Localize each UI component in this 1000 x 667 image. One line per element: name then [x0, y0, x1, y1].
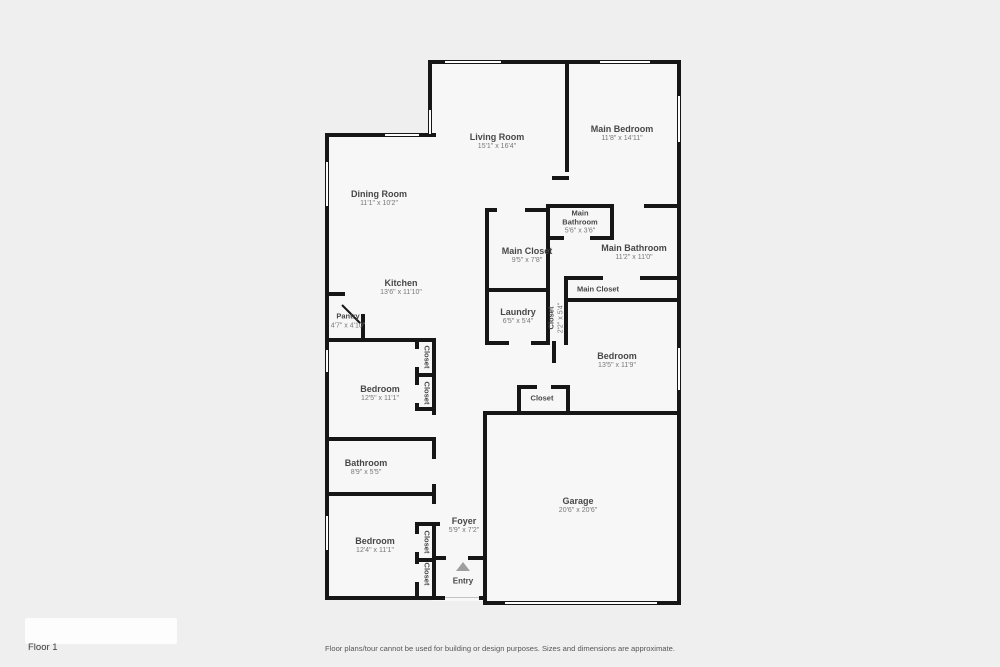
window — [505, 601, 657, 605]
floorplan-canvas: Living Room 15'1" x 16'4" Main Bedroom 1… — [0, 0, 1000, 667]
wall — [565, 60, 569, 172]
room-name: Main Bathroom — [601, 243, 667, 253]
room-name: Main Closet — [577, 286, 619, 295]
room-name: Main Bathroom — [554, 209, 606, 226]
room-label-closet-1: Closet — [422, 346, 431, 369]
wall — [644, 204, 681, 208]
room-dims: 15'1" x 16'4" — [470, 143, 525, 150]
wall — [525, 208, 546, 212]
wall — [485, 208, 497, 212]
wall — [325, 437, 436, 441]
wall — [590, 236, 614, 240]
room-dims: 11'1" x 10'2" — [351, 200, 407, 207]
room-name: Main Bedroom — [591, 124, 654, 134]
room-dims: 12'4" x 11'1" — [355, 547, 395, 554]
window — [325, 162, 329, 206]
room-label-pantry: Pantry 4'7" x 4'10" — [331, 313, 366, 330]
watermark — [25, 618, 177, 644]
wall — [415, 341, 419, 349]
room-label-closet-mid: Closet — [531, 395, 554, 404]
room-label-main-bathroom: Main Bathroom 11'2" x 11'0" — [601, 243, 667, 261]
room-label-main-bathroom-small: Main Bathroom 5'6" x 3'6" — [554, 209, 606, 234]
room-label-bedroom-left: Bedroom 12'5" x 11'1" — [360, 384, 400, 402]
window — [428, 110, 432, 134]
window — [600, 60, 650, 64]
wall — [531, 341, 546, 345]
room-name: Living Room — [470, 132, 525, 142]
room-name: Closet — [422, 346, 431, 369]
wall — [564, 298, 681, 302]
wall — [546, 204, 550, 240]
room-label-foyer: Foyer 5'9" x 7'2" — [449, 516, 480, 534]
wall — [432, 437, 436, 459]
room-label-bedroom-right: Bedroom 13'5" x 11'9" — [597, 351, 637, 369]
room-dims: 2'2" x 5'4" — [557, 303, 564, 334]
wall — [325, 492, 436, 496]
window — [325, 350, 329, 372]
wall — [415, 373, 436, 377]
wall — [610, 204, 614, 240]
room-dims: 5'9" x 7'2" — [449, 527, 480, 534]
entry-opening-line — [445, 597, 479, 598]
wall — [436, 556, 446, 560]
room-name: Bathroom — [345, 458, 388, 468]
room-label-main-bedroom: Main Bedroom 11'8" x 14'11" — [591, 124, 654, 142]
room-label-closet-strip: Closet 2'2" x 5'4" — [548, 303, 565, 334]
room-dims: 6'5" x 5'4" — [500, 318, 536, 325]
room-name: Closet — [531, 395, 554, 404]
room-label-kitchen: Kitchen 13'6" x 11'10" — [380, 278, 422, 296]
wall — [640, 276, 681, 280]
wall — [468, 556, 487, 560]
room-dims: 12'5" x 11'1" — [360, 395, 400, 402]
room-label-main-closet-2: Main Closet — [577, 286, 619, 295]
wall — [325, 292, 345, 296]
window — [385, 133, 419, 137]
room-name: Main Closet — [502, 246, 553, 256]
wall — [564, 276, 568, 345]
wall — [325, 133, 436, 137]
disclaimer-text: Floor plans/tour cannot be used for buil… — [0, 644, 1000, 653]
wall — [415, 407, 436, 411]
room-name: Laundry — [500, 307, 536, 317]
room-label-closet-2: Closet — [422, 382, 431, 405]
room-name: Kitchen — [380, 278, 422, 288]
room-label-dining-room: Dining Room 11'1" x 10'2" — [351, 189, 407, 207]
wall — [325, 338, 436, 342]
room-name: Garage — [559, 496, 597, 506]
room-name: Bedroom — [360, 384, 400, 394]
room-dims: 11'8" x 14'11" — [591, 135, 654, 142]
room-label-closet-3: Closet — [422, 531, 431, 554]
wall — [564, 276, 603, 280]
room-dims: 20'6" x 20'6" — [559, 507, 597, 514]
entry-label: Entry — [453, 577, 473, 586]
room-name: Closet — [548, 303, 557, 334]
window — [445, 60, 501, 64]
wall — [552, 176, 569, 180]
room-dims: 13'5" x 11'9" — [597, 362, 637, 369]
window — [677, 96, 681, 142]
wall — [415, 582, 419, 596]
room-label-bathroom: Bathroom 8'9" x 5'5" — [345, 458, 388, 476]
room-name: Closet — [422, 563, 431, 586]
room-name: Closet — [422, 531, 431, 554]
room-dims: 8'9" x 5'5" — [345, 469, 388, 476]
room-dims: 11'2" x 11'0" — [601, 254, 667, 261]
wall — [485, 341, 509, 345]
wall — [483, 411, 681, 415]
room-name: Pantry — [331, 313, 366, 322]
wall — [325, 596, 440, 600]
wall — [485, 208, 489, 345]
room-name: Bedroom — [597, 351, 637, 361]
wall — [485, 288, 546, 292]
room-dims: 13'6" x 11'10" — [380, 289, 422, 296]
room-label-main-closet: Main Closet 9'5" x 7'8" — [502, 246, 553, 264]
room-name: Dining Room — [351, 189, 407, 199]
wall — [432, 484, 436, 504]
wall — [436, 596, 445, 600]
window — [677, 348, 681, 390]
room-dims: 4'7" x 4'10" — [331, 322, 366, 329]
entry-arrow-icon — [456, 562, 470, 571]
room-label-bedroom-bottom: Bedroom 12'4" x 11'1" — [355, 536, 395, 554]
window — [325, 516, 329, 550]
room-label-living-room: Living Room 15'1" x 16'4" — [470, 132, 525, 150]
room-dims: 5'6" x 3'6" — [554, 228, 606, 235]
room-name: Bedroom — [355, 536, 395, 546]
wall — [415, 526, 419, 534]
wall — [552, 341, 556, 363]
room-name: Closet — [422, 382, 431, 405]
room-dims: 9'5" x 7'8" — [502, 257, 553, 264]
wall — [483, 415, 487, 601]
room-label-garage: Garage 20'6" x 20'6" — [559, 496, 597, 514]
room-name: Foyer — [449, 516, 480, 526]
wall — [415, 558, 436, 562]
room-label-closet-4: Closet — [422, 563, 431, 586]
room-label-laundry: Laundry 6'5" x 5'4" — [500, 307, 536, 325]
